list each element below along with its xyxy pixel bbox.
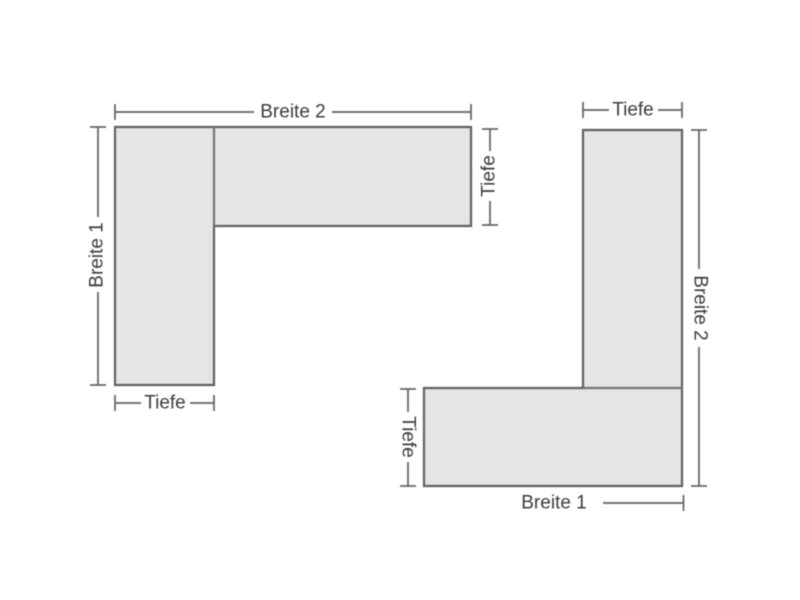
svg-text:Tiefe: Tiefe: [612, 100, 654, 121]
svg-text:Breite 2: Breite 2: [260, 102, 325, 123]
svg-text:Breite 2: Breite 2: [690, 275, 711, 340]
svg-text:Breite 1: Breite 1: [521, 493, 586, 514]
svg-text:Breite 1: Breite 1: [87, 222, 108, 287]
svg-text:Tiefe: Tiefe: [398, 416, 419, 458]
svg-text:Tiefe: Tiefe: [479, 155, 500, 197]
svg-text:Tiefe: Tiefe: [144, 393, 186, 414]
